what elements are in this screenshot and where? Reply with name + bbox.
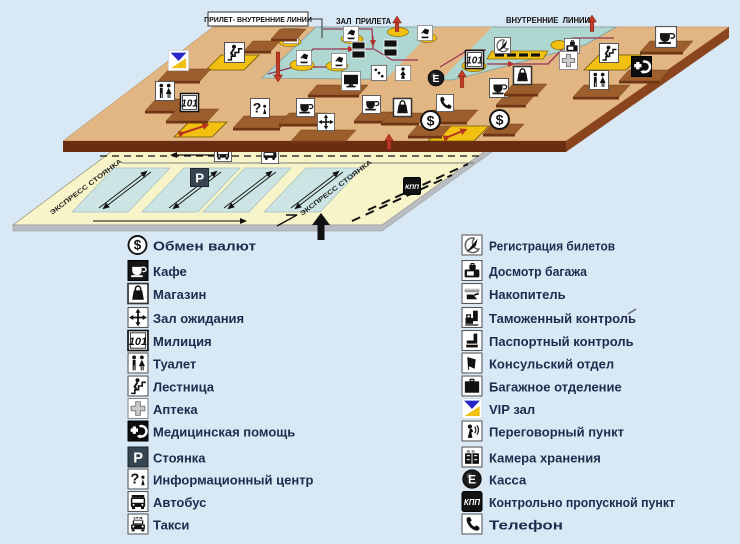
svg-text:Медицинская помощь: Медицинская помощь	[153, 424, 295, 439]
svg-text:Милиция: Милиция	[153, 334, 212, 349]
svg-text:Автобус: Автобус	[153, 495, 206, 510]
svg-text:Аптека: Аптека	[153, 402, 198, 417]
svg-text:Такси: Такси	[153, 517, 189, 532]
svg-text:Багажное отделение: Багажное отделение	[489, 379, 622, 394]
svg-text:ЗАЛ ПРИЛЕТА: ЗАЛ ПРИЛЕТА	[336, 17, 391, 26]
svg-text:Телефон: Телефон	[489, 517, 563, 532]
svg-text:Кафе: Кафе	[153, 264, 187, 279]
svg-text:Касса: Касса	[489, 472, 527, 487]
svg-text:ПРИЛЕТ- ВНУТРЕННИЕ ЛИНИИ: ПРИЛЕТ- ВНУТРЕННИЕ ЛИНИИ	[204, 17, 312, 24]
svg-text:Переговорный пункт: Переговорный пункт	[489, 424, 624, 439]
svg-text:Туалет: Туалет	[153, 356, 196, 371]
svg-text:Консульский отдел: Консульский отдел	[489, 356, 614, 371]
svg-text:Контрольно пропускной пункт: Контрольно пропускной пункт	[489, 495, 675, 510]
svg-text:Досмотр багажа: Досмотр багажа	[489, 264, 588, 279]
svg-text:Информационный центр: Информационный центр	[153, 472, 314, 487]
svg-text:Таможенный контроль: Таможенный контроль	[489, 311, 636, 326]
svg-text:ВНУТРЕННИЕ ЛИНИИ: ВНУТРЕННИЕ ЛИНИИ	[506, 16, 590, 25]
svg-text:Камера хранения: Камера хранения	[489, 450, 601, 465]
svg-text:Накопитель: Накопитель	[489, 287, 566, 302]
svg-text:Стоянка: Стоянка	[153, 450, 206, 465]
svg-text:VIP зал: VIP зал	[489, 402, 535, 417]
svg-text:Магазин: Магазин	[153, 287, 206, 302]
svg-text:Регистрация билетов: Регистрация билетов	[489, 238, 615, 253]
svg-text:Лестница: Лестница	[153, 379, 215, 394]
svg-text:Обмен валют: Обмен валют	[153, 238, 256, 253]
svg-text:Паспортный контроль: Паспортный контроль	[489, 334, 634, 349]
svg-text:Зал ожидания: Зал ожидания	[153, 311, 244, 326]
